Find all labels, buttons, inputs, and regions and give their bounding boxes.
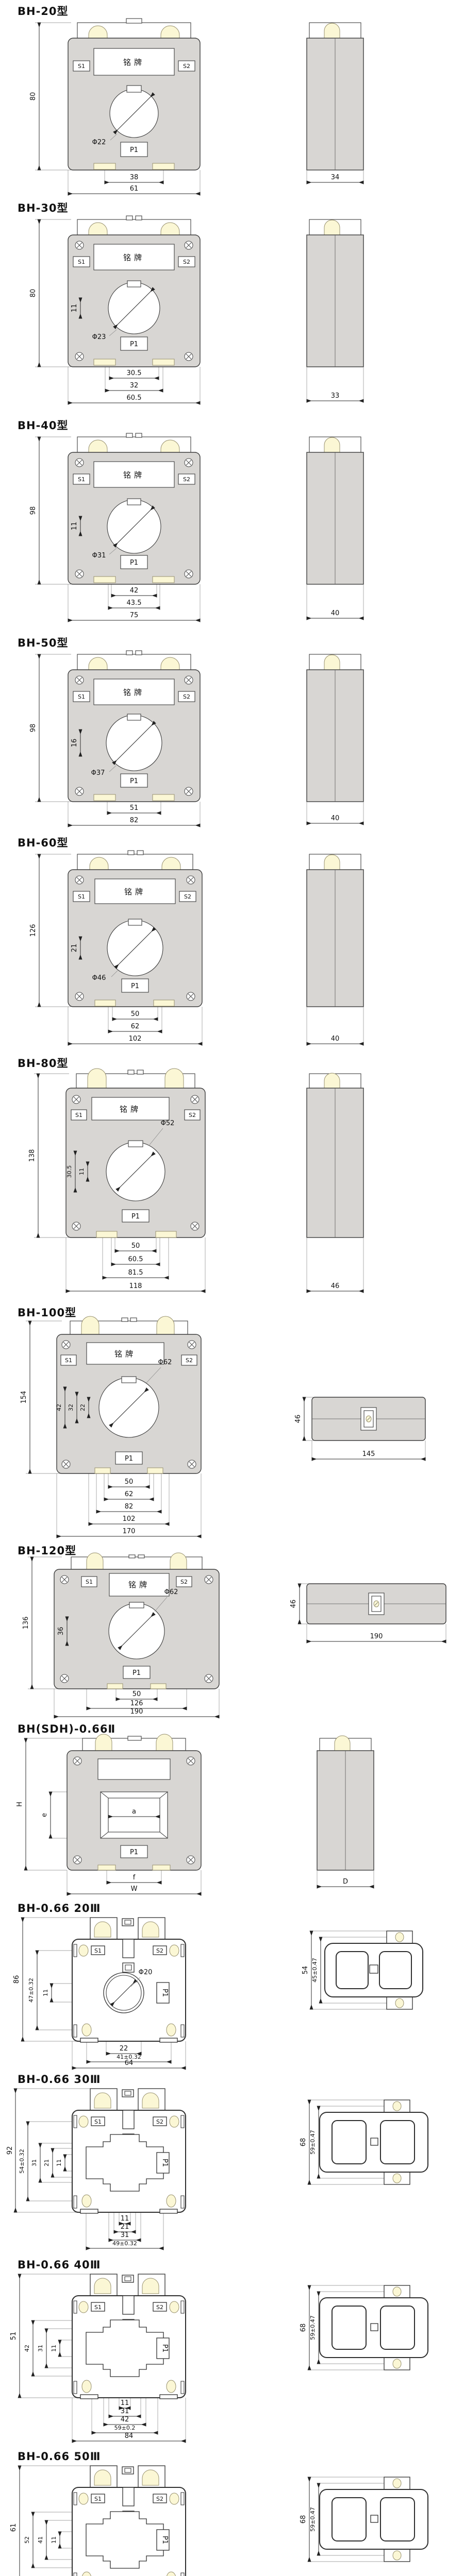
depth-dim: 40 bbox=[331, 609, 340, 617]
window-height-dim: e bbox=[41, 1813, 48, 1817]
width-dim: 49±0.32 bbox=[112, 2240, 137, 2247]
notch-dim: 21 bbox=[71, 944, 78, 953]
vdim: 31 bbox=[31, 2159, 38, 2166]
p1-label: P1 bbox=[130, 1849, 138, 1856]
vdim: 11 bbox=[51, 2345, 57, 2352]
s2-label: S2 bbox=[156, 2304, 163, 2311]
p1-label: P1 bbox=[161, 2344, 169, 2352]
section-title: BH(SDH)-0.66Ⅱ bbox=[18, 1723, 115, 1735]
s2-label: S2 bbox=[186, 1357, 193, 1364]
front-view: S1 S2 P1 92 54±0.32 31 21 11 11 21 31 49… bbox=[5, 2086, 273, 2255]
height-dim: 80 bbox=[29, 92, 37, 101]
height-dim: 51 bbox=[10, 2332, 18, 2341]
nameplate-label: 铭牌 bbox=[123, 688, 145, 697]
width-dim: 118 bbox=[129, 1282, 142, 1290]
depth-dim: 34 bbox=[331, 174, 340, 181]
depth-dim: 40 bbox=[331, 1035, 340, 1043]
width-dim: 38 bbox=[130, 174, 139, 181]
side-view: 46 bbox=[278, 1067, 392, 1300]
side-inner-dim: 59±0.47 bbox=[309, 2130, 316, 2155]
width-dim: 22 bbox=[120, 2045, 128, 2053]
foot bbox=[94, 163, 115, 170]
s1-label: S1 bbox=[78, 63, 85, 70]
foot bbox=[94, 359, 115, 365]
height-dim: 98 bbox=[29, 724, 37, 733]
hole-dim: Φ31 bbox=[92, 552, 106, 560]
side-width-dim: 145 bbox=[362, 1450, 375, 1458]
height-dim: 86 bbox=[13, 1975, 21, 1984]
width-dim: 64 bbox=[125, 2059, 134, 2067]
vdim: 21 bbox=[43, 2159, 50, 2166]
width-dim: 82 bbox=[125, 1503, 134, 1511]
front-view: H e a P1 f W bbox=[5, 1735, 273, 1898]
width-dim: 81.5 bbox=[128, 1269, 143, 1277]
height-dim: 138 bbox=[28, 1149, 36, 1162]
width-dim: 170 bbox=[123, 1528, 136, 1535]
notch-dim: 11 bbox=[71, 522, 78, 531]
s2-label: S2 bbox=[183, 476, 190, 483]
nameplate-label: 铭牌 bbox=[124, 887, 146, 896]
p1-label: P1 bbox=[161, 1989, 169, 1997]
width-dim: 50 bbox=[131, 1010, 140, 1018]
side-height-dim: 46 bbox=[290, 1600, 297, 1608]
width-dim: 50 bbox=[131, 1242, 140, 1250]
side-outer-dim: 68 bbox=[300, 2138, 307, 2147]
width-dim: 82 bbox=[130, 817, 139, 824]
s2-label: S2 bbox=[189, 1112, 196, 1118]
width-dim: 102 bbox=[129, 1035, 142, 1043]
height-dim: 136 bbox=[22, 1617, 30, 1630]
section-title: BH-0.66 30Ⅲ bbox=[18, 2073, 101, 2086]
nameplate-label: 铭牌 bbox=[123, 470, 145, 480]
notch-dim: 30.5 bbox=[66, 1165, 73, 1178]
side-view: 40 bbox=[278, 647, 392, 831]
vdim: 54±0.32 bbox=[19, 2149, 25, 2174]
p1-label: P1 bbox=[132, 1669, 141, 1677]
height-dim: 92 bbox=[6, 2146, 14, 2155]
hole-dim: Φ52 bbox=[161, 1120, 175, 1127]
side-view: 68 59±0.47 bbox=[289, 2471, 454, 2576]
width-dim: 126 bbox=[130, 1700, 143, 1707]
side-view: D bbox=[289, 1735, 392, 1898]
width-dim: 11 bbox=[121, 2215, 129, 2223]
s2-label: S2 bbox=[183, 259, 190, 265]
vdim: 11 bbox=[51, 2536, 57, 2544]
height-dim: 61 bbox=[10, 2523, 18, 2532]
width-dim: 42 bbox=[121, 2416, 129, 2424]
front-view: S1 S2 P1 61 52 41 11 11 41 52 69±0.2 94 bbox=[5, 2463, 273, 2576]
width-dim: 62 bbox=[125, 1490, 134, 1498]
vdim: 47±0.32 bbox=[28, 1978, 35, 2003]
s2-label: S2 bbox=[156, 2119, 163, 2125]
p1-label: P1 bbox=[161, 2536, 169, 2544]
hole-dim: Φ23 bbox=[92, 333, 106, 341]
width-dim: 50 bbox=[125, 1478, 134, 1486]
width-dim: 84 bbox=[125, 2432, 134, 2440]
depth-dim: 46 bbox=[331, 1282, 340, 1290]
window bbox=[332, 2121, 366, 2164]
side-outer-dim: 68 bbox=[300, 2515, 307, 2524]
width-dim: 60.5 bbox=[128, 1256, 143, 1263]
s1-label: S1 bbox=[94, 1947, 102, 1954]
s1-label: S1 bbox=[78, 476, 85, 483]
height-dim: 80 bbox=[29, 289, 37, 298]
depth-dim: 33 bbox=[331, 392, 340, 400]
width-dim: 43.5 bbox=[127, 599, 142, 607]
front-view: 铭牌 S1 S2 11 Φ23 P1 80 30.5 32 60.5 bbox=[10, 212, 258, 413]
nameplate-label: 铭牌 bbox=[123, 253, 145, 262]
width-dim: 62 bbox=[131, 1023, 140, 1030]
hole-dim: Φ62 bbox=[164, 1588, 178, 1596]
width-dim: 59±0.2 bbox=[114, 2425, 136, 2431]
nameplate bbox=[98, 1759, 170, 1780]
side-view: 46 145 bbox=[284, 1377, 454, 1495]
s2-label: S2 bbox=[156, 1947, 163, 1954]
notch-dim: 42 bbox=[56, 1404, 62, 1411]
s1-label: S1 bbox=[65, 1357, 72, 1364]
vdim: 11 bbox=[42, 1989, 49, 1996]
width-dim: 190 bbox=[130, 1708, 143, 1716]
width-dim: 31 bbox=[121, 2231, 129, 2239]
s1-label: S1 bbox=[94, 2304, 102, 2311]
s2-label: S2 bbox=[180, 1579, 188, 1585]
side-outer-dim: 54 bbox=[302, 1966, 309, 1975]
s1-label: S1 bbox=[94, 2496, 102, 2502]
front-view: 铭牌 S1 S2 Φ22 P1 80 38 61 bbox=[10, 15, 258, 196]
width-dim: 31 bbox=[121, 2408, 129, 2415]
s2-label: S2 bbox=[183, 693, 190, 700]
s1-label: S1 bbox=[78, 693, 85, 700]
side-view: 54 45±0.47 bbox=[289, 1923, 454, 2026]
p1-label: P1 bbox=[130, 777, 138, 785]
s2-label: S2 bbox=[156, 2496, 163, 2502]
p1-label: P1 bbox=[131, 1213, 140, 1221]
section-title: BH-0.66 20Ⅲ bbox=[18, 1902, 101, 1914]
width-dim: 51 bbox=[130, 804, 139, 812]
notch-dim: 11 bbox=[78, 1168, 85, 1175]
notch-dim: 32 bbox=[68, 1404, 74, 1411]
side-inner-dim: 59±0.47 bbox=[309, 2315, 316, 2340]
front-view: 铭牌 S1 S2 11 Φ31 P1 98 42 43.5 75 bbox=[10, 430, 258, 631]
s1-label: S1 bbox=[86, 1579, 93, 1585]
s1-label: S1 bbox=[75, 1112, 82, 1118]
catalog-page: BH-20型 铭牌 S1 S2 Φ22 P1 80 38 61 34 BH-30… bbox=[0, 0, 464, 2576]
side-view: 46 190 bbox=[281, 1563, 456, 1682]
side-view: 68 59±0.47 bbox=[289, 2279, 454, 2387]
foot bbox=[153, 163, 174, 170]
width-dim: 102 bbox=[123, 1515, 136, 1523]
vdim: 52 bbox=[24, 2536, 30, 2544]
notch-dim: 11 bbox=[71, 304, 78, 313]
front-view: 铭牌 S1 S2 30.5 11 Φ52 P1 138 50 60.5 81.5… bbox=[10, 1067, 258, 1300]
width-dim: 50 bbox=[132, 1690, 141, 1698]
notch-dim: 16 bbox=[71, 739, 78, 748]
window bbox=[380, 2121, 415, 2164]
window bbox=[379, 1952, 411, 1989]
front-view: 铭牌 S1 S2 21 Φ46 P1 126 50 62 102 bbox=[10, 847, 258, 1051]
p1-label: P1 bbox=[130, 146, 138, 154]
side-view: 34 bbox=[278, 15, 392, 196]
width-dim: 32 bbox=[130, 382, 139, 389]
width-dim: W bbox=[131, 1885, 138, 1893]
side-inner-dim: 45±0.47 bbox=[311, 1958, 318, 1982]
height-dim: 154 bbox=[20, 1391, 28, 1404]
height-dim: H bbox=[16, 1802, 24, 1807]
window-width-dim: a bbox=[132, 1808, 136, 1816]
depth-dim: D bbox=[343, 1878, 348, 1886]
width-dim: 61 bbox=[130, 185, 139, 193]
depth-dim: 40 bbox=[331, 815, 340, 822]
hole-dim: Φ22 bbox=[92, 139, 106, 146]
notch-dim: 36 bbox=[57, 1627, 65, 1636]
side-outer-dim: 68 bbox=[300, 2324, 307, 2332]
side-height-dim: 46 bbox=[294, 1415, 302, 1423]
height-dim: 98 bbox=[29, 506, 37, 515]
hole-dim: Φ20 bbox=[139, 1969, 153, 1976]
window bbox=[336, 1952, 368, 1989]
vdim: 31 bbox=[37, 2345, 44, 2352]
foot bbox=[153, 359, 174, 365]
width-dim: 21 bbox=[121, 2223, 129, 2231]
side-view: 33 bbox=[278, 212, 392, 413]
s1-label: S1 bbox=[78, 893, 85, 900]
p1-label: P1 bbox=[131, 982, 139, 990]
notch-dim: 22 bbox=[79, 1404, 86, 1411]
s2-label: S2 bbox=[183, 63, 190, 70]
front-view: 铭牌 S1 S2 16 Φ37 P1 98 51 82 bbox=[10, 647, 258, 831]
front-view: S1 S2 Φ20 P1 86 47±0.32 11 22 41±0.32 64 bbox=[5, 1914, 273, 2069]
s1-label: S1 bbox=[78, 259, 85, 265]
nameplate-label: 铭牌 bbox=[128, 1580, 150, 1589]
hole-dim: Φ46 bbox=[92, 974, 106, 982]
side-inner-dim: 59±0.47 bbox=[309, 2507, 316, 2532]
width-dim: 11 bbox=[121, 2399, 129, 2407]
hole-dim: Φ62 bbox=[158, 1359, 172, 1366]
p1-label: P1 bbox=[161, 2159, 169, 2167]
nameplate-label: 铭牌 bbox=[114, 1349, 136, 1359]
section-title: BH-0.66 50Ⅲ bbox=[18, 2450, 101, 2463]
width-dim: 75 bbox=[130, 612, 139, 619]
s2-label: S2 bbox=[184, 893, 191, 900]
p1-label: P1 bbox=[130, 559, 138, 567]
front-view: S1 S2 P1 51 42 31 11 11 31 42 59±0.2 84 bbox=[5, 2271, 273, 2446]
width-dim: 60.5 bbox=[127, 394, 142, 402]
width-dim: 30.5 bbox=[127, 369, 142, 377]
vdim: 41 bbox=[37, 2536, 44, 2544]
width-dim: f bbox=[133, 1874, 136, 1882]
nameplate-label: 铭牌 bbox=[120, 1105, 141, 1114]
width-dim: 42 bbox=[130, 587, 139, 595]
p1-label: P1 bbox=[125, 1455, 133, 1463]
p1-label: P1 bbox=[130, 341, 138, 348]
height-dim: 126 bbox=[29, 924, 37, 937]
side-view: 68 59±0.47 bbox=[289, 2094, 454, 2202]
section-title: BH-0.66 40Ⅲ bbox=[18, 2259, 101, 2271]
nameplate-label: 铭牌 bbox=[123, 58, 145, 67]
vdim: 11 bbox=[56, 2159, 62, 2166]
s1-label: S1 bbox=[94, 2119, 102, 2125]
side-view: 40 bbox=[278, 847, 392, 1051]
side-view: 40 bbox=[278, 430, 392, 631]
hole-dim: Φ37 bbox=[91, 769, 105, 777]
vdim: 42 bbox=[24, 2345, 30, 2352]
front-view: 铭牌 S1 S2 42 32 22 Φ62 P1 154 50 62 82 10… bbox=[5, 1317, 263, 1538]
side-width-dim: 190 bbox=[370, 1633, 383, 1640]
terminal bbox=[324, 23, 340, 38]
front-view: S1 铭牌 S2 36 Φ62 P1 136 50 126 190 bbox=[5, 1555, 273, 1719]
